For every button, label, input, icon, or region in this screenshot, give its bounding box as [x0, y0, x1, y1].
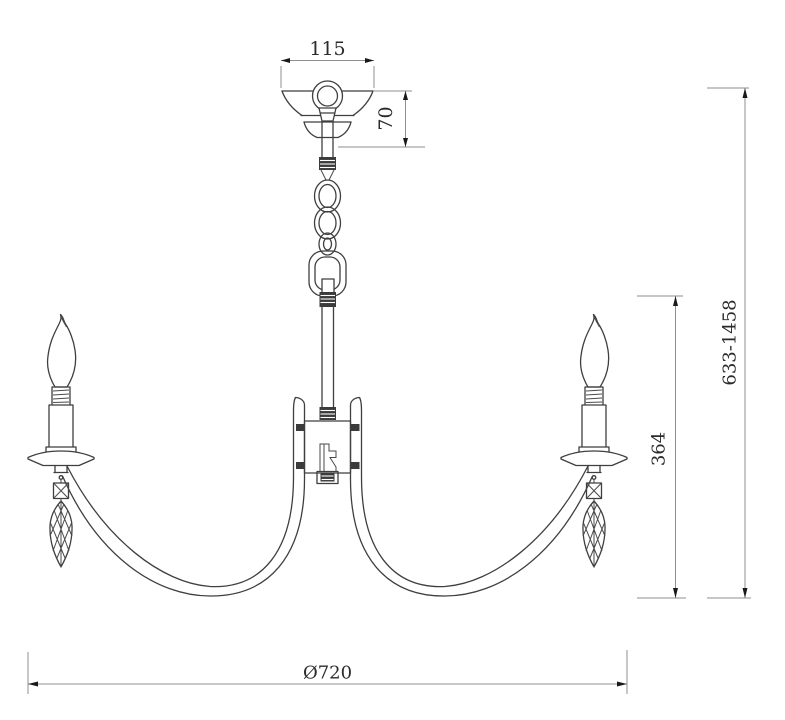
dim-label-canopy-height: 70 [375, 106, 397, 130]
corner-bolt [296, 462, 305, 469]
ring-collar [319, 108, 336, 121]
drawing-canvas: 115 70 633-1458 364 Ø720 [0, 0, 785, 720]
stem-nipple [319, 121, 336, 180]
chandelier-dimension-drawing: 115 70 633-1458 364 Ø720 [0, 0, 785, 720]
corner-bolt [351, 424, 360, 431]
dim-label-body-height: 364 [649, 432, 670, 466]
dim-label-diameter: Ø720 [303, 663, 352, 684]
decorative-link [309, 251, 346, 307]
corner-bolt [296, 424, 305, 431]
dimension-body-height: 364 [637, 296, 686, 598]
dim-label-canopy-width: 115 [309, 38, 345, 60]
corner-bolt [351, 462, 360, 469]
right-arm [351, 398, 593, 597]
left-arm [63, 398, 305, 597]
right-candle [561, 315, 627, 568]
dim-label-overall-height: 633-1458 [720, 299, 741, 385]
stem-rod [320, 306, 337, 420]
dimension-diameter: Ø720 [28, 650, 627, 694]
chain [315, 180, 341, 255]
dimension-overall-height: 633-1458 [707, 88, 751, 598]
dimension-canopy-height: 70 [338, 91, 425, 147]
left-candle [28, 315, 94, 568]
